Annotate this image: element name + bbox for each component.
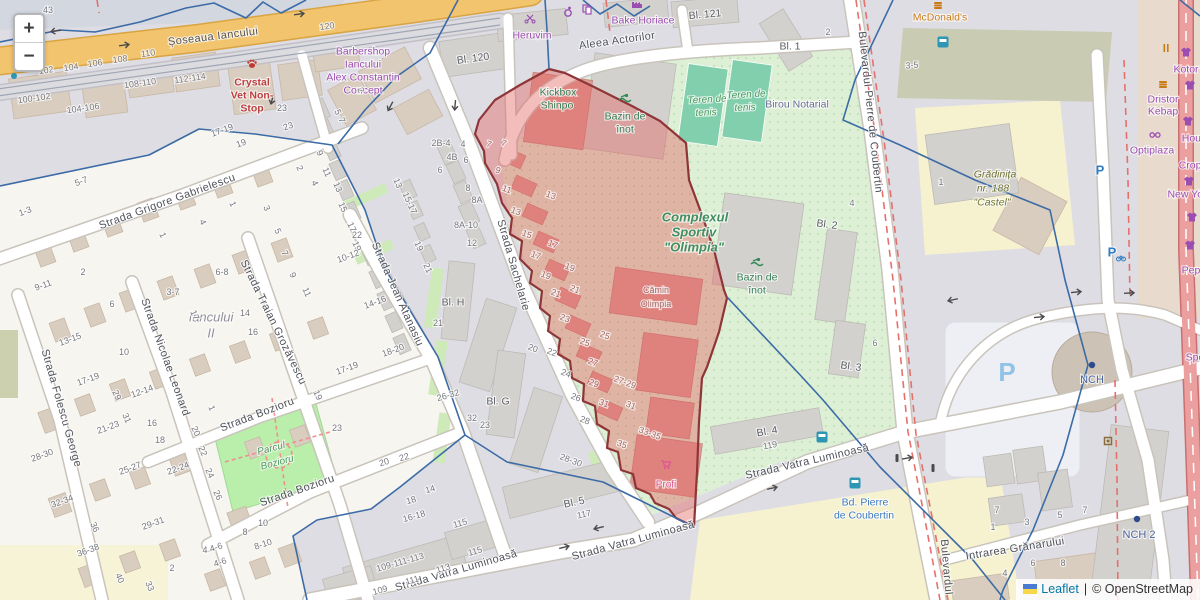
mcdonalds-lot [897,28,1112,102]
map-label: 4 [849,198,854,208]
bus-stop-icon [11,73,17,79]
map-label: Cropp [1179,160,1200,172]
map-label: 43 [43,5,53,15]
map-label: Teren de [687,93,727,106]
map-label: 5 [1057,510,1062,520]
map-label: Iancului [345,59,381,71]
map-label: de Coubertin [834,510,894,522]
map-label: Complexul [662,210,729,225]
map-label: 23 [282,120,295,133]
map-label: 8A [471,195,482,205]
map-label: tenis [734,102,756,114]
map-label: 12 [467,238,477,248]
map-label: 32 [467,413,477,423]
bus-stop-icon [938,37,949,48]
map-label: 2B-4 [431,138,450,148]
bus-stop-icon [850,478,861,489]
map-label: Aleea Actorilor [578,30,656,53]
map-label: 4 [460,139,465,149]
map-label: 6 [1030,558,1035,568]
map-label: 23 [277,103,287,113]
oneway-arrow-icon [947,296,958,304]
map-label: Olimpia [641,299,672,309]
map-label: 2 [169,563,174,573]
map-label: 16 [147,418,157,428]
map-label: 4 [202,545,207,555]
map-label: 21 [433,318,443,328]
map-label: Sportiv [672,225,718,240]
map-label: 3-5 [905,60,919,71]
map-label: 6 [463,155,468,165]
map-label: 23 [480,420,490,430]
map-label: Grădinița [974,169,1017,181]
map-label: Kebap [1148,106,1179,118]
map-label: Crystal [234,77,270,89]
map-label: 1 [990,522,995,532]
oneway-arrow-icon [1071,289,1081,296]
map-label: Vet Non- [231,90,274,102]
map-label: 22 [352,230,362,240]
openstreetmap-link[interactable]: © OpenStreetMap [1092,582,1193,596]
map-label: NCH 2 [1122,529,1155,541]
map-label: 7 [1082,505,1087,515]
map-label: 18 [405,494,417,506]
map-label: Bazin de [737,272,778,284]
attribution-bar: Leaflet | © OpenStreetMap [1016,579,1200,600]
map-label: Kickbox [540,87,578,99]
map-label: 120 [319,20,335,32]
map-label: Kotor [1173,64,1199,76]
map-zoom-control: + − [13,13,45,72]
map-label: 3-7 [166,287,179,297]
burger-icon [934,2,942,9]
oneway-arrow-icon [51,27,62,34]
map-label: 23 [332,423,342,433]
map-label: Bl. G [486,396,509,408]
map-label: Optiplaza [1130,145,1175,157]
map-label: 104 [63,61,79,73]
map-label: Cămin [643,285,669,295]
map-label: 108 [112,53,128,65]
attribution-separator: | [1084,582,1087,596]
traffic-signal-icon [896,454,899,462]
map-label: 28-30 [558,452,583,469]
map-label: Hous [1182,133,1200,145]
leaflet-link[interactable]: Leaflet [1041,582,1079,596]
zoom-out-button[interactable]: − [15,43,43,70]
map-label: 14 [424,483,436,495]
map-label: Profi [656,480,677,491]
traffic-signal-icon [932,464,935,472]
map-label: 18 [155,435,165,445]
bus-stop-icon [817,432,828,443]
map-label: 6 [437,165,442,175]
oneway-arrow-icon [593,524,604,532]
map-label: McDonald's [913,12,968,24]
map-label: Shinpo [541,100,574,112]
map-label: 4 [1002,568,1007,578]
map-viewport[interactable]: Șoseaua IanculuiAleea ActorilorStrada Gr… [0,0,1200,600]
map-label: 8A-10 [454,220,478,230]
map-label: 6 [872,338,877,348]
map-label: 2 [825,27,830,37]
map-label: 8 [242,527,247,537]
map-label: P [1108,245,1117,260]
ukraine-flag-icon [1023,584,1037,594]
map-label: P [1096,163,1105,178]
map-label: 110 [140,47,156,59]
map-label: Dristor [1148,94,1179,106]
map-label: P [998,357,1015,387]
map-label: 14 [240,308,250,318]
map-label: 10 [119,347,129,357]
map-label: 2 [80,267,85,277]
poi-dot-marker [1089,362,1095,368]
map-label: 3 [1024,517,1029,527]
map-label: "Olimpia" [664,240,725,255]
map-label: 6 [109,299,114,309]
map-label: Bake Horiace [611,15,674,27]
map-label: 8 [465,183,470,193]
map-label: 117 [576,508,592,521]
map-label: 106 [87,57,103,69]
map-label: II [207,326,215,341]
map-label: 6-8 [215,267,228,277]
map-label: Birou Notarial [765,99,829,111]
map-label: înot [747,285,766,297]
map-label: New Yor [1167,189,1200,201]
map-label: 20 [527,342,540,355]
map-label: 7 [994,505,999,515]
map-canvas[interactable]: Șoseaua IanculuiAleea ActorilorStrada Gr… [0,0,1200,600]
map-label: Barbershop [336,46,390,58]
map-label: Pep [1182,265,1200,277]
map-label: Spo [1186,352,1200,364]
map-label: Heruvim [512,30,551,42]
map-label: "Castel" [973,197,1011,209]
map-label: Stop [240,103,263,115]
map-label: 16 [248,327,258,337]
map-label: Bl. 1 [779,41,800,53]
poi-dot-marker [1134,516,1140,522]
map-label: Bazin de [605,111,646,123]
map-label: Alex Constantin [326,72,400,84]
map-label: Teren de [726,88,766,101]
map-label: 16-18 [402,508,427,524]
map-label: tenis [695,107,717,119]
oneway-arrow-icon [1124,290,1134,297]
map-label: 1 [938,177,943,187]
bicycle-icon [1117,256,1126,261]
map-label: înot [615,124,634,136]
map-label: NCH [1080,374,1104,386]
map-label: 10 [258,518,268,528]
burger-icon [1159,81,1167,88]
map-label: Bd. Pierre [842,497,889,509]
map-label: Bl. H [442,297,465,309]
map-label: nr. 188 [977,183,1009,195]
map-label: 4B [446,152,457,162]
zoom-in-button[interactable]: + [15,15,43,43]
map-label: 8 [1060,558,1065,568]
